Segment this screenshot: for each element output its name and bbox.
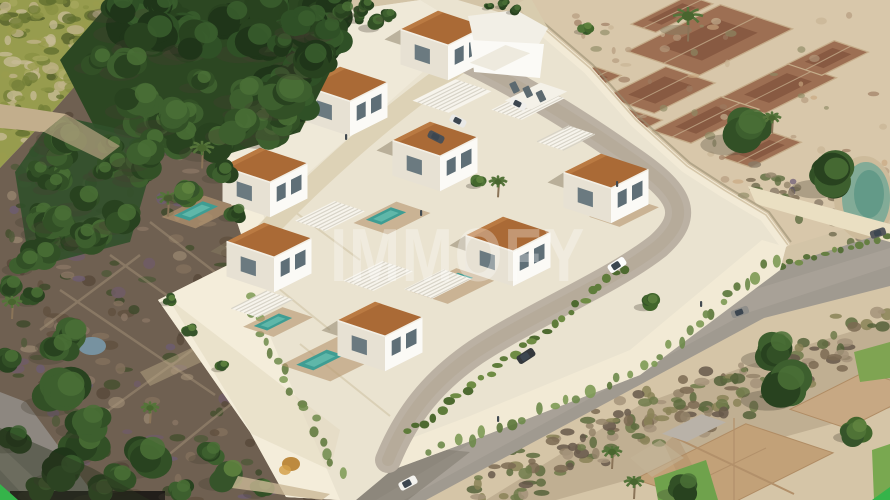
svg-text:IMMOFY: IMMOFY <box>330 213 586 297</box>
